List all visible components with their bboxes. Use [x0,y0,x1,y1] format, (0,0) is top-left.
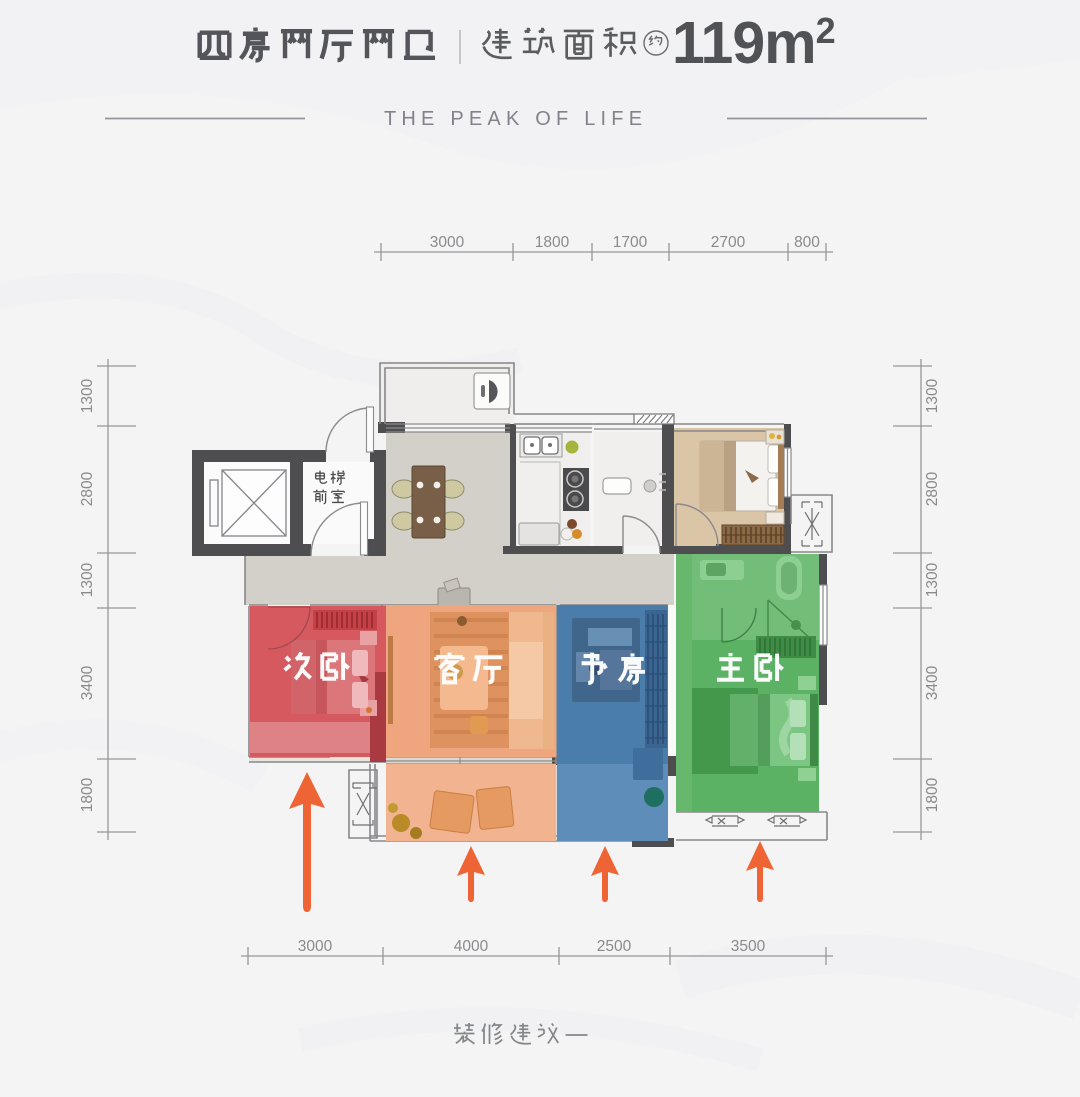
svg-text:3400: 3400 [79,665,96,700]
svg-text:800: 800 [794,234,820,251]
svg-text:3400: 3400 [924,665,941,700]
svg-text:THE PEAK OF LIFE: THE PEAK OF LIFE [384,108,647,130]
svg-text:3000: 3000 [298,938,333,955]
svg-text:1300: 1300 [924,562,941,597]
svg-text:3500: 3500 [731,938,766,955]
svg-text:1800: 1800 [535,234,570,251]
svg-text:1300: 1300 [924,378,941,413]
svg-text:1800: 1800 [79,777,96,812]
svg-text:1300: 1300 [79,562,96,597]
svg-text:2800: 2800 [79,471,96,506]
svg-text:3000: 3000 [430,234,465,251]
svg-text:2800: 2800 [924,471,941,506]
svg-text:4000: 4000 [454,938,489,955]
svg-text:1700: 1700 [613,234,648,251]
svg-text:1300: 1300 [79,378,96,413]
svg-text:119m2: 119m2 [672,10,835,76]
svg-text:2700: 2700 [711,234,746,251]
svg-text:2500: 2500 [597,938,632,955]
svg-text:1800: 1800 [924,777,941,812]
